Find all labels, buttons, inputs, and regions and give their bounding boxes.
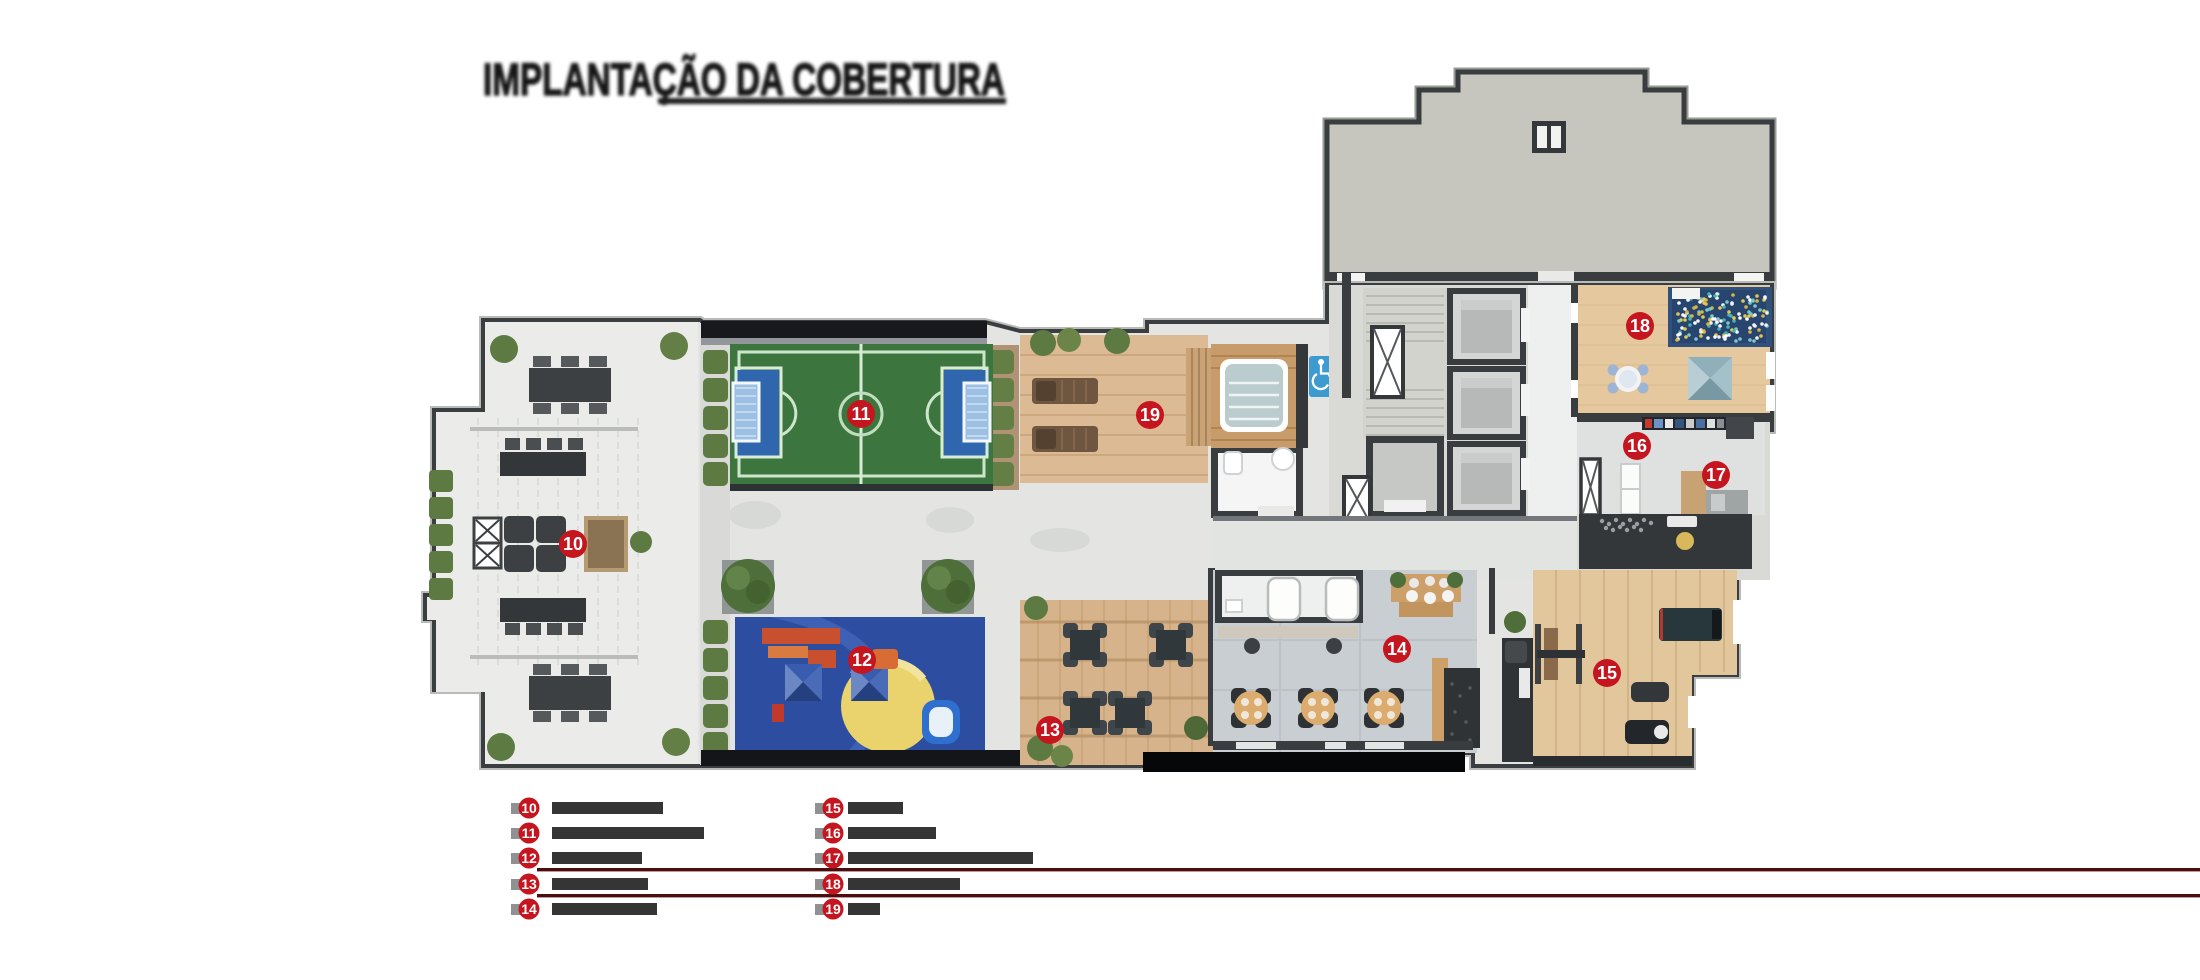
svg-text:14: 14 xyxy=(521,901,537,917)
svg-text:17: 17 xyxy=(825,850,841,866)
svg-text:10: 10 xyxy=(563,534,583,554)
svg-text:17: 17 xyxy=(1706,465,1726,485)
svg-text:16: 16 xyxy=(825,825,841,841)
svg-text:18: 18 xyxy=(825,876,841,892)
svg-text:IMPLANTAÇÃO DA COBERTURA: IMPLANTAÇÃO DA COBERTURA xyxy=(483,54,1005,105)
svg-text:11: 11 xyxy=(522,825,537,841)
svg-text:15: 15 xyxy=(825,800,841,816)
svg-text:12: 12 xyxy=(852,650,872,670)
svg-text:19: 19 xyxy=(825,901,841,917)
svg-text:14: 14 xyxy=(1387,639,1407,659)
svg-text:10: 10 xyxy=(521,800,537,816)
svg-text:13: 13 xyxy=(521,876,537,892)
svg-text:15: 15 xyxy=(1597,663,1617,683)
svg-text:12: 12 xyxy=(521,850,537,866)
svg-text:18: 18 xyxy=(1630,316,1650,336)
svg-text:19: 19 xyxy=(1140,405,1160,425)
svg-text:11: 11 xyxy=(851,404,870,424)
svg-text:16: 16 xyxy=(1627,436,1647,456)
svg-text:13: 13 xyxy=(1040,720,1060,740)
